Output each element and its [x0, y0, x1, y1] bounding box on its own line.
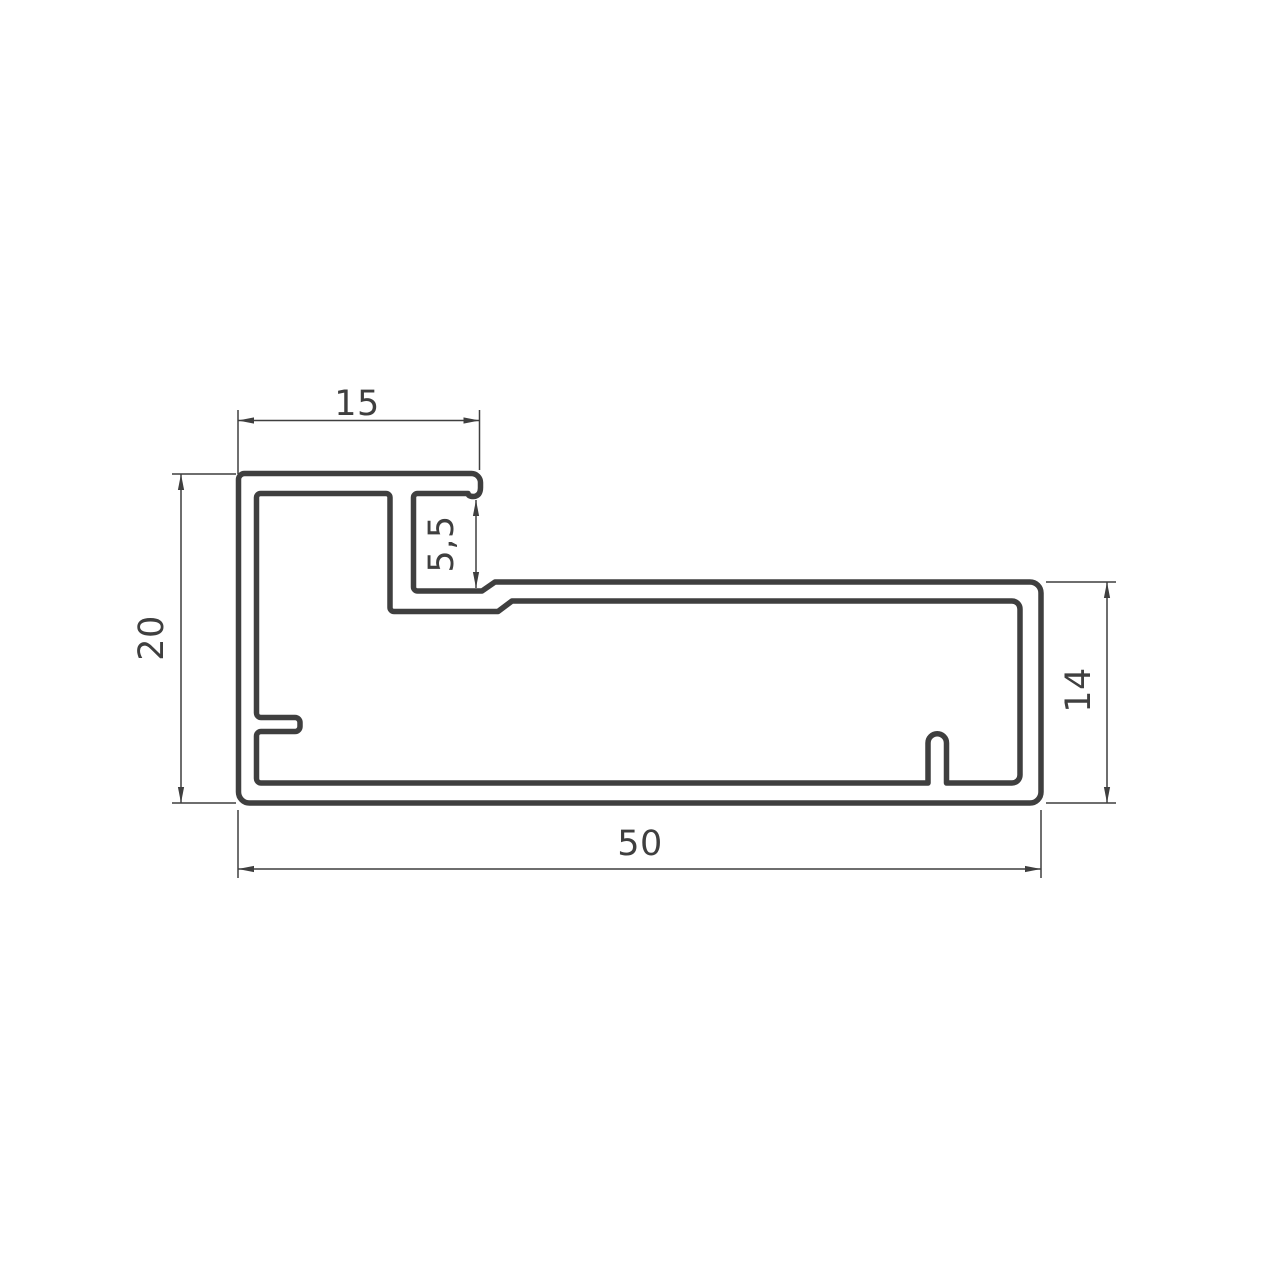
- arrowhead: [1104, 787, 1110, 803]
- arrowhead: [473, 572, 479, 588]
- arrowhead: [473, 500, 479, 516]
- profile-drawing-canvas: 15 5,5 20 14 50: [0, 0, 1280, 1280]
- technical-drawing-page: 15 5,5 20 14 50: [0, 0, 1280, 1280]
- arrowhead: [178, 787, 184, 803]
- dimension-label-slot-opening: 5,5: [422, 515, 462, 572]
- profile-cross-section: [239, 474, 1042, 804]
- dimension-label-overall-height: 20: [132, 615, 172, 661]
- dimension-label-body-height: 14: [1059, 667, 1099, 713]
- arrowhead: [1104, 582, 1110, 598]
- arrowhead: [238, 866, 254, 872]
- profile-inner-contour: [257, 494, 1021, 784]
- arrowhead: [1025, 866, 1041, 872]
- dimension-lines: [172, 410, 1116, 878]
- profile-outer-contour: [239, 474, 1042, 804]
- dimension-label-overall-width: 50: [617, 824, 663, 864]
- arrowhead: [178, 474, 184, 490]
- dimension-label-flange-width: 15: [334, 384, 380, 424]
- dimension-labels: 15 5,5 20 14 50: [132, 384, 1099, 864]
- arrowhead: [464, 417, 480, 423]
- arrowhead: [238, 417, 254, 423]
